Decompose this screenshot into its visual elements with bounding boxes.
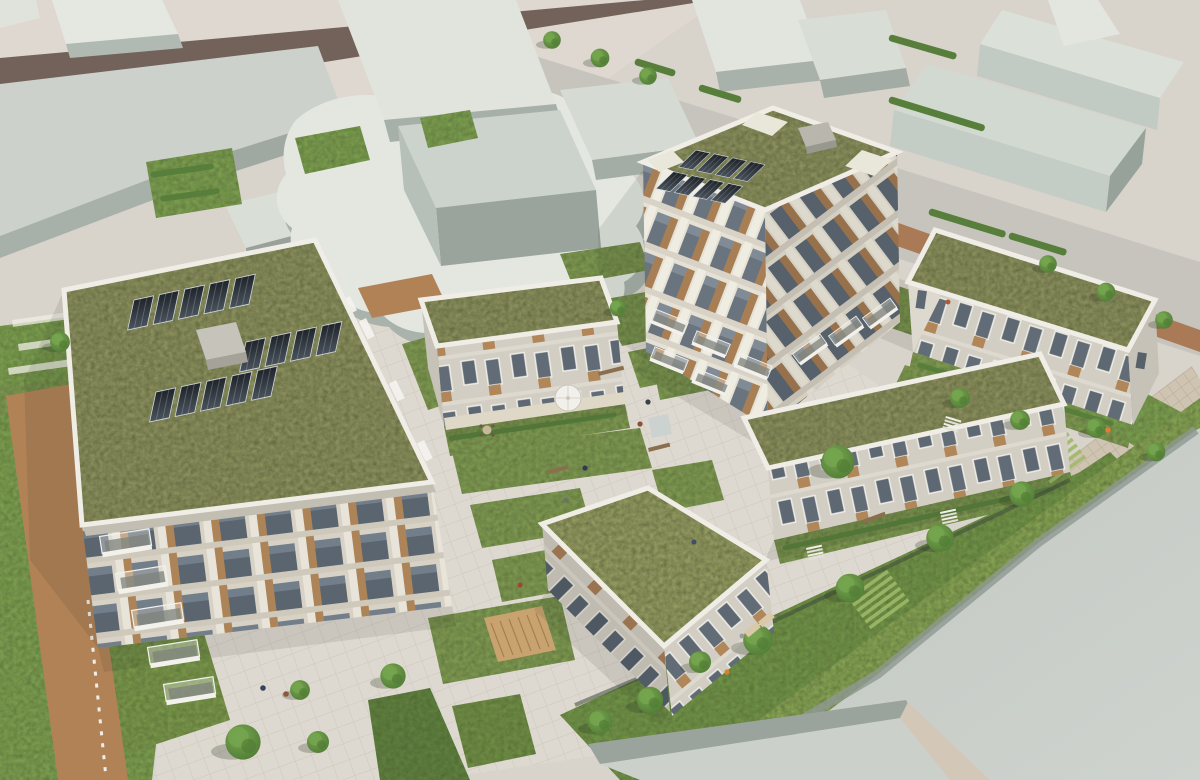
- aerial-render: [0, 0, 1200, 780]
- water-feature: [648, 414, 672, 438]
- parasol: [555, 385, 581, 411]
- aerial-render-canvas: [0, 0, 1200, 780]
